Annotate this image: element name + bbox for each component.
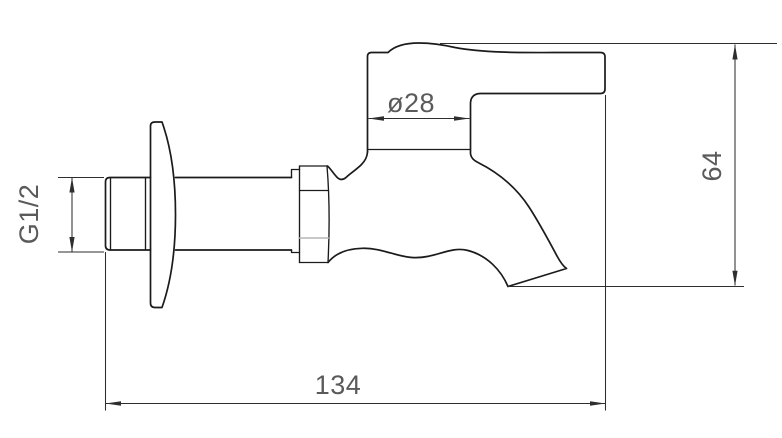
dim-label-body-diameter: ø28 xyxy=(387,88,435,118)
supply-pipe xyxy=(176,178,292,251)
nut-collar-bottom xyxy=(292,250,300,253)
height-dim-arrow-down xyxy=(732,271,737,286)
dimension-overall-length: 134 xyxy=(106,95,606,411)
dim-label-overall-height: 64 xyxy=(697,150,727,181)
dimension-overall-height: 64 xyxy=(440,44,777,287)
nut-right-edge xyxy=(327,166,329,263)
faucet-body xyxy=(328,43,606,287)
wall-flange xyxy=(151,122,176,308)
drawing-canvas: G1/2 ø28 64 134 xyxy=(0,0,782,438)
flange-outline-path xyxy=(151,122,176,308)
dimension-body-diameter: ø28 xyxy=(369,88,470,121)
length-dim-arrow-left xyxy=(106,401,122,406)
body-neck-curve xyxy=(328,152,368,179)
diameter-dim-arrow-left xyxy=(369,116,385,121)
thread-dim-arrow-up xyxy=(69,178,74,193)
thread-dim-arrow-down xyxy=(69,237,74,252)
dimension-inlet-thread: G1/2 xyxy=(14,178,104,253)
length-dim-arrow-right xyxy=(590,401,606,406)
height-dim-arrow-up xyxy=(732,45,737,60)
thread-outline-path xyxy=(106,178,151,251)
faucet-body-outline-path xyxy=(328,43,605,287)
diameter-dim-arrow-right xyxy=(454,116,470,121)
hex-nut xyxy=(292,166,330,263)
dim-label-inlet-thread: G1/2 xyxy=(14,184,44,245)
nut-collar-top xyxy=(292,170,300,178)
thread-nipple xyxy=(106,178,151,251)
faucet-technical-drawing: G1/2 ø28 64 134 xyxy=(0,0,782,438)
dim-label-overall-length: 134 xyxy=(315,370,362,400)
